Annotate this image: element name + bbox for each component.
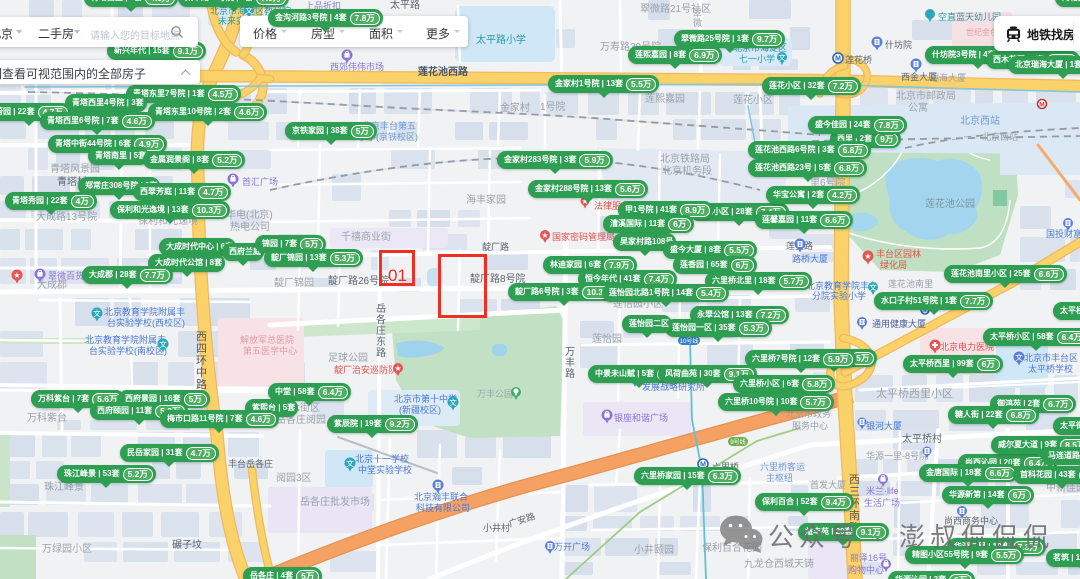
svg-text:靛厂治安巡防队: 靛厂治安巡防队 — [334, 364, 397, 375]
svg-text:碾子坟: 碾子坟 — [172, 538, 202, 551]
svg-text:万绿园小区: 万绿园小区 — [42, 542, 92, 555]
svg-text:1号院: 1号院 — [540, 100, 566, 113]
svg-text:太平路小学: 太平路小学 — [476, 33, 526, 46]
svg-text:(新疆校区): (新疆校区) — [399, 404, 441, 415]
svg-text:环: 环 — [196, 355, 207, 367]
svg-text:万科紫台: 万科紫台 — [27, 411, 67, 424]
svg-text:北京教育学院丰台: 北京教育学院丰台 — [806, 280, 878, 291]
svg-text:台实验学校(南校区): 台实验学校(南校区) — [89, 345, 167, 356]
svg-text:北京十一学校: 北京十一学校 — [355, 453, 409, 464]
svg-text:华电(北京): 华电(北京) — [226, 208, 273, 221]
svg-text:什坊院: 什坊院 — [885, 39, 912, 50]
svg-text:丽泽16号: 丽泽16号 — [850, 553, 887, 563]
svg-text:太平桥西里小区: 太平桥西里小区 — [876, 387, 953, 400]
svg-text:10号线: 10号线 — [680, 337, 699, 345]
svg-text:岳: 岳 — [376, 303, 386, 315]
svg-text:M: M — [1039, 102, 1044, 109]
svg-text:北京铁路局: 北京铁路局 — [660, 152, 710, 165]
svg-text:银座和谐广场: 银座和谐广场 — [614, 412, 668, 423]
svg-text:丰台岳各庄: 丰台岳各庄 — [228, 458, 273, 469]
svg-text:北京市丰台区: 北京市丰台区 — [1024, 352, 1078, 363]
svg-text:莲熙嘉园: 莲熙嘉园 — [645, 92, 685, 105]
svg-text:路: 路 — [376, 346, 386, 359]
svg-text:生活广场: 生活广场 — [864, 497, 900, 508]
svg-text:西: 西 — [196, 331, 207, 343]
svg-text:北京教育学院附属丰: 北京教育学院附属丰 — [104, 306, 185, 317]
svg-text:北京西站: 北京西站 — [960, 114, 1000, 127]
svg-text:莲花小区: 莲花小区 — [733, 93, 773, 106]
svg-text:庄: 庄 — [376, 324, 386, 337]
svg-text:★: ★ — [541, 231, 548, 240]
svg-text:北京教育学院附属丰: 北京教育学院附属丰 — [85, 334, 166, 345]
svg-text:北京瀚丰联合: 北京瀚丰联合 — [414, 491, 468, 502]
svg-text:★: ★ — [864, 252, 871, 261]
svg-text:路: 路 — [565, 367, 575, 380]
svg-text:文: 文 — [93, 308, 101, 318]
svg-text:万开广场: 万开广场 — [554, 541, 590, 552]
svg-text:M: M — [835, 56, 841, 63]
svg-text:米兰·life: 米兰·life — [866, 485, 899, 496]
svg-text:通用健康大厦: 通用健康大厦 — [872, 318, 926, 329]
svg-text:莲花池南里: 莲花池南里 — [888, 278, 933, 289]
svg-text:国家密码管理局: 国家密码管理局 — [552, 231, 615, 242]
svg-text:文: 文 — [778, 52, 786, 62]
svg-text:万丰公园: 万丰公园 — [477, 388, 513, 399]
svg-text:主枢纽: 主枢纽 — [766, 472, 793, 483]
svg-text:空直蓝天幼儿园: 空直蓝天幼儿园 — [938, 11, 1001, 22]
svg-text:千禧商业街: 千禧商业街 — [341, 230, 391, 243]
svg-text:莲花池公园: 莲花池公园 — [925, 197, 975, 210]
svg-text:太平路: 太平路 — [390, 0, 420, 11]
svg-text:首汇广场: 首汇广场 — [242, 176, 278, 187]
svg-text:银河大厦: 银河大厦 — [866, 420, 902, 431]
svg-text:9号线: 9号线 — [730, 438, 745, 446]
svg-text:九龙仓西城天铸: 九龙仓西城天铸 — [744, 557, 814, 570]
svg-text:太平桥学校: 太平桥学校 — [1028, 363, 1073, 374]
svg-text:各: 各 — [376, 313, 386, 326]
svg-text:海丰家园: 海丰家园 — [466, 193, 506, 206]
svg-text:四: 四 — [196, 343, 207, 355]
svg-text:★: ★ — [394, 364, 401, 373]
svg-text:太平桥村: 太平桥村 — [902, 432, 942, 445]
svg-text:科技有限公司: 科技有限公司 — [416, 502, 470, 513]
svg-text:七一小学: 七一小学 — [739, 53, 775, 64]
svg-text:莲怡园: 莲怡园 — [592, 332, 622, 345]
svg-text:西金大厦: 西金大厦 — [901, 71, 937, 82]
svg-text:靛厂路: 靛厂路 — [482, 241, 509, 252]
svg-text:台实验学校(西校区): 台实验学校(西校区) — [107, 317, 185, 328]
svg-text:小井村: 小井村 — [483, 522, 510, 533]
svg-text:小井颐园: 小井颐园 — [634, 543, 674, 556]
svg-text:万: 万 — [565, 347, 575, 358]
svg-text:北京市邮政局: 北京市邮政局 — [896, 89, 956, 102]
svg-text:文: 文 — [159, 339, 167, 349]
svg-text:足球公园: 足球公园 — [328, 351, 368, 364]
svg-text:中: 中 — [196, 366, 207, 379]
svg-text:路桥大厦: 路桥大厦 — [792, 253, 828, 264]
svg-text:分院实验小学: 分院实验小学 — [812, 290, 866, 301]
svg-text:丰台区园林: 丰台区园林 — [876, 248, 921, 259]
svg-text:阅园3区: 阅园3区 — [276, 471, 312, 484]
svg-text:西郊伟伟市场: 西郊伟伟市场 — [330, 61, 384, 72]
svg-text:绿化局: 绿化局 — [880, 259, 907, 270]
svg-text:六里桥客运: 六里桥客运 — [760, 461, 805, 472]
svg-text:东: 东 — [376, 335, 386, 348]
svg-text:金家村: 金家村 — [500, 101, 530, 114]
svg-text:丰: 丰 — [565, 356, 575, 369]
svg-text:国投财富: 国投财富 — [1046, 228, 1080, 239]
svg-text:★: ★ — [13, 271, 20, 280]
svg-text:莲花池西路: 莲花池西路 — [418, 65, 469, 78]
svg-text:翠: 翠 — [693, 8, 702, 18]
svg-text:北京西站: 北京西站 — [982, 131, 1018, 142]
svg-text:购物中心: 购物中心 — [848, 564, 884, 575]
svg-text:热电公司: 热电公司 — [230, 220, 270, 233]
svg-text:西: 西 — [849, 474, 860, 486]
svg-text:服务中心: 服务中心 — [792, 420, 828, 431]
svg-text:北京机务段: 北京机务段 — [662, 164, 712, 177]
svg-text:中堂实验学校: 中堂实验学校 — [358, 464, 412, 475]
svg-text:文: 文 — [1015, 352, 1023, 362]
svg-text:莲花桥: 莲花桥 — [845, 54, 872, 65]
svg-text:文: 文 — [346, 458, 354, 468]
svg-text:文: 文 — [869, 282, 877, 292]
svg-text:微: 微 — [693, 17, 702, 28]
svg-text:华源一里-8号院: 华源一里-8号院 — [866, 450, 928, 461]
svg-text:岳各庄批发市场: 岳各庄批发市场 — [300, 495, 370, 508]
svg-text:公寓: 公寓 — [908, 101, 928, 114]
svg-text:解放军总医院: 解放军总医院 — [240, 334, 294, 345]
svg-text:文: 文 — [449, 397, 457, 407]
svg-text:翠微百货: 翠微百货 — [48, 270, 84, 281]
svg-text:第五医学中心: 第五医学中心 — [243, 345, 297, 356]
svg-text:首发大厦: 首发大厦 — [810, 479, 846, 490]
svg-text:靛厂锦园: 靛厂锦园 — [274, 276, 314, 289]
